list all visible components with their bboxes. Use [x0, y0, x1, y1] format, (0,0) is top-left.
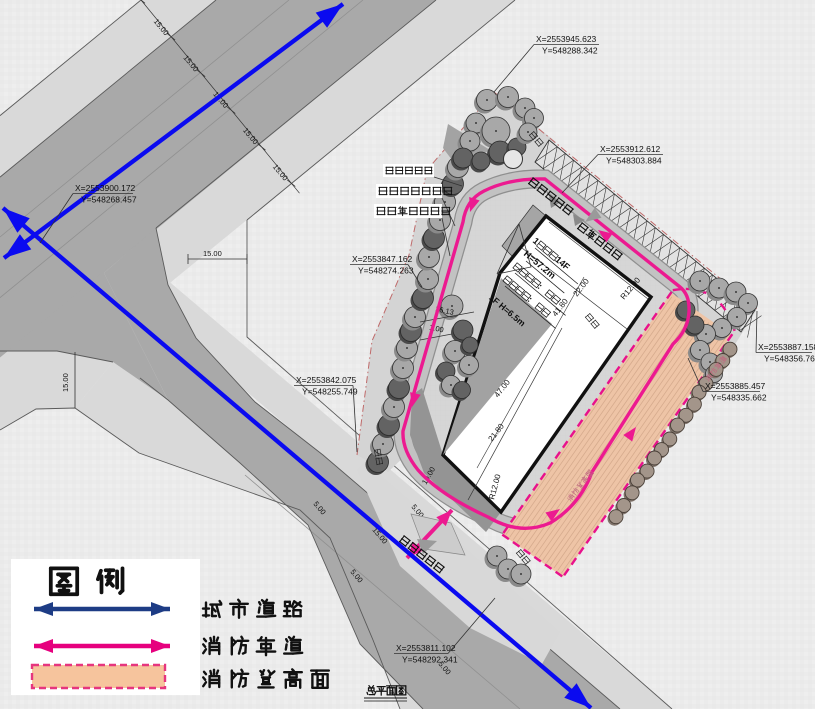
svg-text:Y=548335.662: Y=548335.662 [711, 393, 767, 403]
svg-text:X=2553847.162: X=2553847.162 [352, 254, 413, 264]
svg-text:Y=548356.760: Y=548356.760 [764, 354, 815, 364]
svg-text:X=2553811.102: X=2553811.102 [396, 643, 456, 653]
svg-text:X=2553842.075: X=2553842.075 [296, 375, 357, 385]
svg-text:Y=548268.457: Y=548268.457 [81, 195, 137, 205]
svg-text:Y=548303.884: Y=548303.884 [606, 156, 662, 166]
svg-text:Y=548274.263: Y=548274.263 [358, 266, 414, 276]
svg-text:Y=548292.341: Y=548292.341 [402, 655, 458, 665]
svg-text:Y=548255.749: Y=548255.749 [302, 387, 358, 397]
svg-text:X=2553885.457: X=2553885.457 [705, 381, 766, 391]
svg-text:15.00: 15.00 [203, 249, 222, 258]
svg-text:Y=548288.342: Y=548288.342 [542, 46, 598, 56]
svg-text:X=2553900.172: X=2553900.172 [75, 183, 136, 193]
svg-text:15.00: 15.00 [61, 373, 70, 392]
svg-text:X=2553887.158: X=2553887.158 [758, 342, 815, 352]
svg-text:X=2553912.612: X=2553912.612 [600, 144, 661, 154]
svg-text:X=2553945.623: X=2553945.623 [536, 34, 597, 44]
